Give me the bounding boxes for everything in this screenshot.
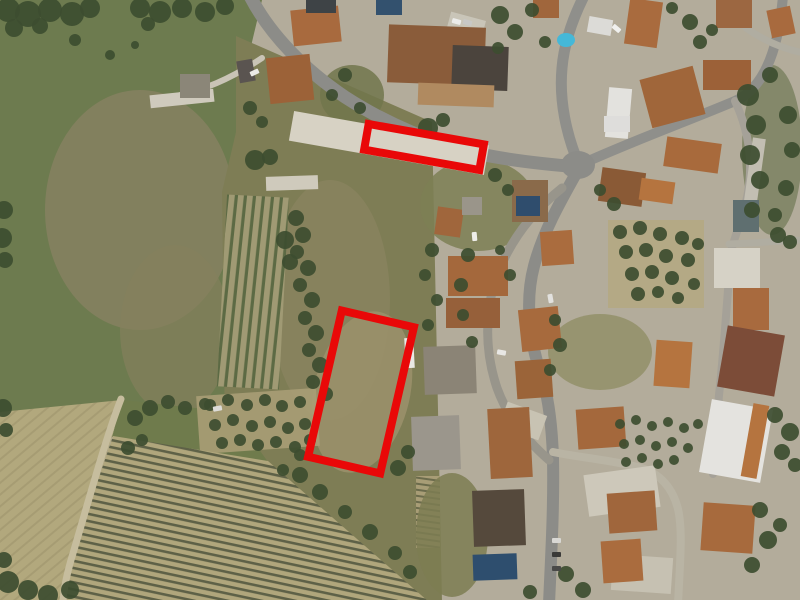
tree (688, 278, 700, 290)
tree (679, 423, 689, 433)
tree (594, 184, 606, 196)
tree (575, 582, 591, 598)
tree (631, 287, 645, 301)
tree (288, 210, 304, 226)
tree (388, 546, 402, 560)
tree (457, 309, 469, 321)
tree (222, 394, 234, 406)
building-farm-shed (266, 175, 318, 191)
tree (553, 338, 567, 352)
tree (216, 437, 228, 449)
tree (259, 394, 271, 406)
building-house-ne-1 (624, 0, 663, 48)
tree (652, 286, 664, 298)
building-apartment-south-wing (418, 83, 495, 108)
car (552, 538, 561, 543)
tree (523, 585, 537, 599)
tree (621, 457, 631, 467)
tree (18, 580, 38, 600)
tree (639, 243, 653, 257)
building-house-right-1 (653, 340, 692, 388)
car (472, 232, 478, 241)
tree (613, 225, 627, 239)
tree (645, 265, 659, 279)
tree (270, 436, 282, 448)
tree (744, 202, 760, 218)
tree (245, 150, 265, 170)
tree (276, 400, 288, 412)
building-solar-roof-top (376, 0, 402, 15)
tree (209, 419, 221, 431)
tree (304, 292, 320, 308)
tree (161, 395, 175, 409)
building-gray-building-2 (411, 415, 461, 471)
tree (308, 325, 324, 341)
tree (243, 101, 257, 115)
tree (768, 208, 782, 222)
building-house-bottom-3 (601, 539, 644, 584)
tree (773, 518, 787, 532)
tree (401, 445, 415, 459)
tree (653, 459, 663, 469)
building-dark-roof-top (306, 0, 336, 13)
tree (669, 455, 679, 465)
building-dark-building (472, 489, 526, 547)
tree (234, 434, 246, 446)
tree (647, 421, 657, 431)
car (552, 552, 561, 557)
building-field-shed (180, 74, 210, 98)
tree (615, 419, 625, 429)
tree (491, 6, 509, 24)
tree (390, 460, 406, 476)
tree (779, 106, 797, 124)
tree (681, 253, 695, 267)
tree (436, 113, 450, 127)
tree (495, 245, 505, 255)
tree (488, 168, 502, 182)
tree (142, 400, 158, 416)
tree (105, 50, 115, 60)
building-central-apartment-south (446, 298, 500, 328)
tree (5, 19, 23, 37)
tree (504, 269, 516, 281)
tree (783, 235, 797, 249)
tree (354, 102, 366, 114)
tree (692, 238, 704, 250)
tree (625, 267, 639, 281)
building-gray-building-1 (423, 345, 477, 395)
tree (651, 441, 661, 451)
tree (706, 24, 718, 36)
tree (312, 484, 328, 500)
tree (422, 319, 434, 331)
tree (544, 364, 556, 376)
tree (746, 115, 766, 135)
tree (737, 84, 759, 106)
garden-rows (217, 195, 289, 390)
aerial-photo (0, 0, 800, 600)
tree (141, 17, 155, 31)
tree (262, 149, 278, 165)
tree (302, 343, 316, 357)
tree (299, 418, 311, 430)
tree (362, 524, 378, 540)
tree (667, 437, 677, 447)
tree (178, 401, 192, 415)
building-house-bottom-2 (607, 490, 658, 533)
car (552, 566, 561, 571)
tree (338, 68, 352, 82)
tree (264, 416, 276, 428)
tree (295, 227, 311, 243)
tree (292, 467, 308, 483)
building-white-building (604, 116, 630, 132)
tree (131, 41, 139, 49)
tree (425, 243, 439, 257)
tree (419, 269, 431, 281)
tree (431, 294, 443, 306)
tree (539, 36, 551, 48)
tree (666, 2, 678, 14)
tree (492, 42, 504, 54)
tree (294, 396, 306, 408)
tree (653, 227, 667, 241)
tree (338, 505, 352, 519)
tree (663, 417, 673, 427)
tree (466, 336, 478, 348)
tree (282, 422, 294, 434)
tree (502, 184, 514, 196)
tree (461, 248, 475, 262)
building-house-nw-central (434, 206, 464, 237)
tree (298, 311, 312, 325)
building-solar-panels (516, 196, 540, 216)
tree (246, 420, 258, 432)
tree (635, 435, 645, 445)
yard-southeast (548, 314, 652, 390)
building-house-bottom-4 (700, 502, 755, 554)
swimming-pool (557, 33, 575, 47)
tree (781, 423, 799, 441)
tree (778, 180, 794, 196)
tree (252, 439, 264, 451)
tree (633, 221, 647, 235)
tree (631, 415, 641, 425)
building-orange-building-east (733, 288, 769, 330)
tree (751, 171, 769, 189)
tree (784, 142, 800, 158)
tree (693, 35, 707, 49)
tree (277, 464, 289, 476)
tree (665, 271, 679, 285)
tree (326, 89, 338, 101)
tree (276, 231, 294, 249)
tree (227, 414, 239, 426)
tree (774, 444, 790, 460)
tree (69, 34, 81, 46)
building-house-b (266, 54, 315, 104)
tree (752, 502, 768, 518)
tree (693, 419, 703, 429)
tree (619, 439, 629, 449)
tree (672, 292, 684, 304)
building-solar-array (473, 553, 518, 581)
tree (744, 557, 760, 573)
tree (607, 197, 621, 211)
tree (32, 18, 48, 34)
tree (637, 453, 647, 463)
tree (767, 407, 783, 423)
tree (454, 278, 468, 292)
tree (762, 67, 778, 83)
tree (127, 410, 143, 426)
building-building-road-west (487, 407, 533, 479)
intersection (561, 151, 595, 179)
tree (619, 245, 633, 259)
tree (136, 434, 148, 446)
tree (740, 145, 760, 165)
building-house-east-1 (540, 230, 574, 266)
tree (525, 3, 539, 17)
tree (759, 531, 777, 549)
tree (300, 260, 316, 276)
tree (256, 116, 268, 128)
satellite-image (0, 0, 800, 600)
tree (61, 581, 79, 599)
tree (507, 24, 523, 40)
tree (659, 249, 673, 263)
courtyard-east (714, 248, 760, 288)
field-brown-patch-2 (120, 245, 230, 415)
building-building-e3 (639, 178, 676, 205)
tree (403, 565, 417, 579)
building-warehouse-red (717, 325, 785, 396)
tree (682, 14, 698, 30)
tree (293, 278, 307, 292)
building-house-ne-2 (716, 0, 752, 28)
tree (549, 314, 561, 326)
tree (306, 375, 320, 389)
tree (683, 443, 693, 453)
building-gray-small (462, 197, 482, 215)
tree (241, 399, 253, 411)
tree (195, 2, 215, 22)
tree (675, 231, 689, 245)
tree (121, 441, 135, 455)
tree (282, 254, 298, 270)
